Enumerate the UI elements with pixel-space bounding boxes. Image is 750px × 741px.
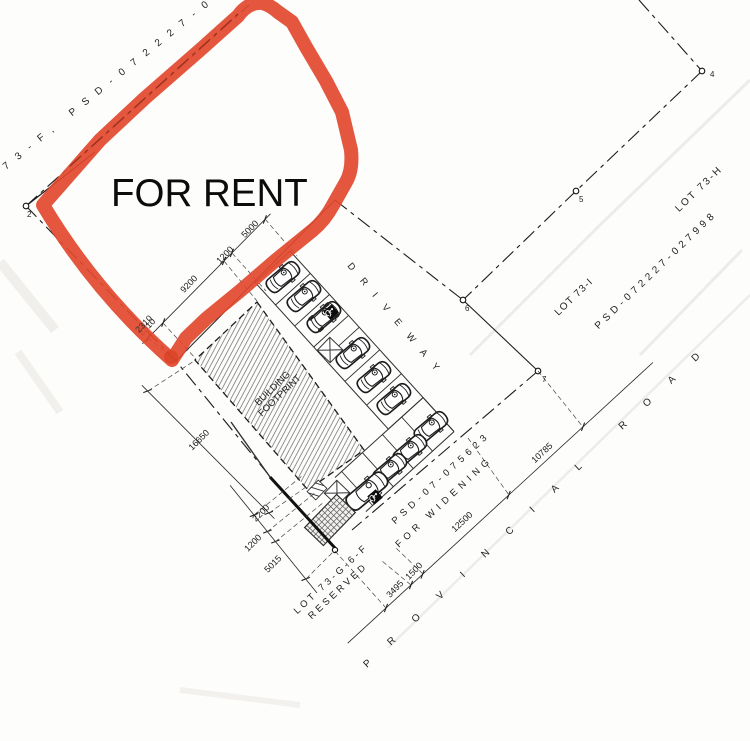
svg-text:FOR RENT: FOR RENT	[111, 172, 308, 215]
svg-text:6: 6	[465, 304, 470, 313]
svg-text:4: 4	[710, 70, 715, 79]
svg-text:5: 5	[579, 195, 584, 204]
svg-text:2: 2	[27, 210, 32, 219]
